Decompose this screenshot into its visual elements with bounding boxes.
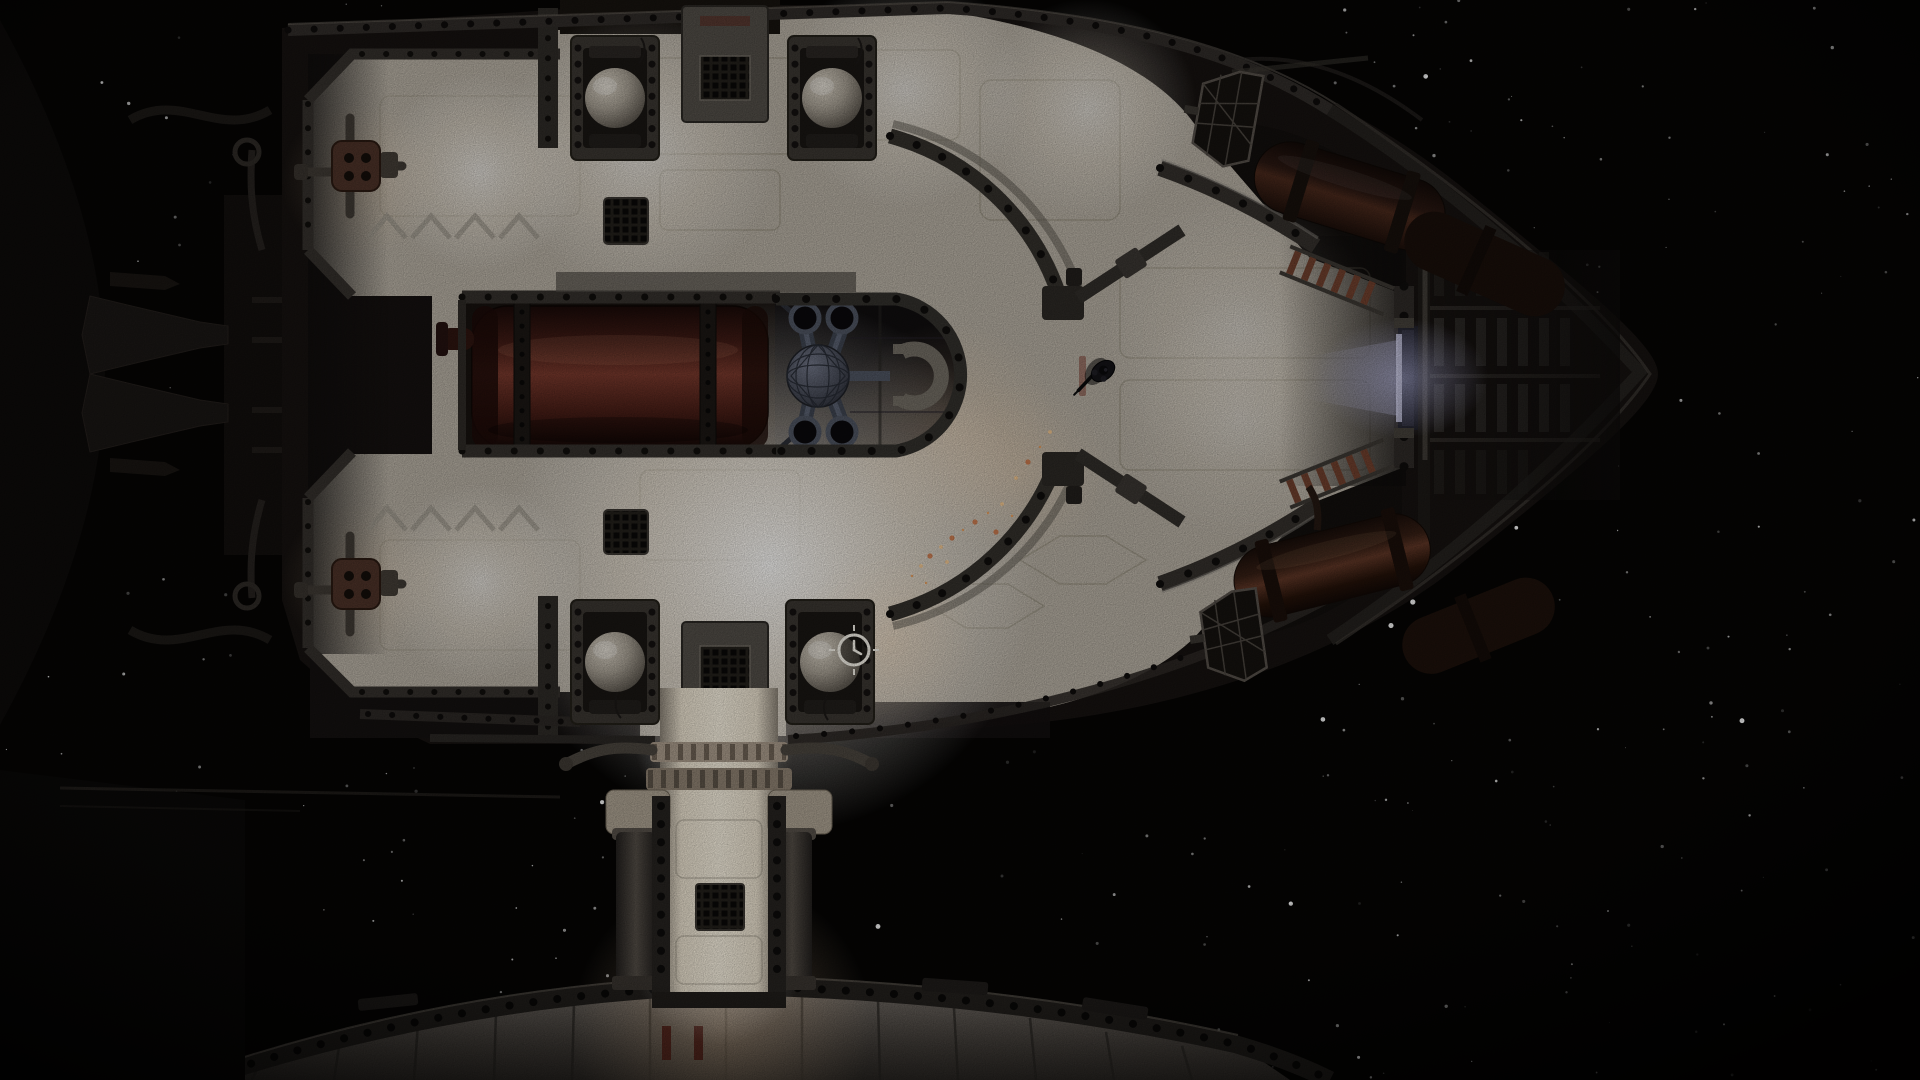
vignette-overlay	[0, 0, 1920, 1080]
scene-canvas[interactable]	[0, 0, 1920, 1080]
game-viewport[interactable]	[0, 0, 1920, 1080]
